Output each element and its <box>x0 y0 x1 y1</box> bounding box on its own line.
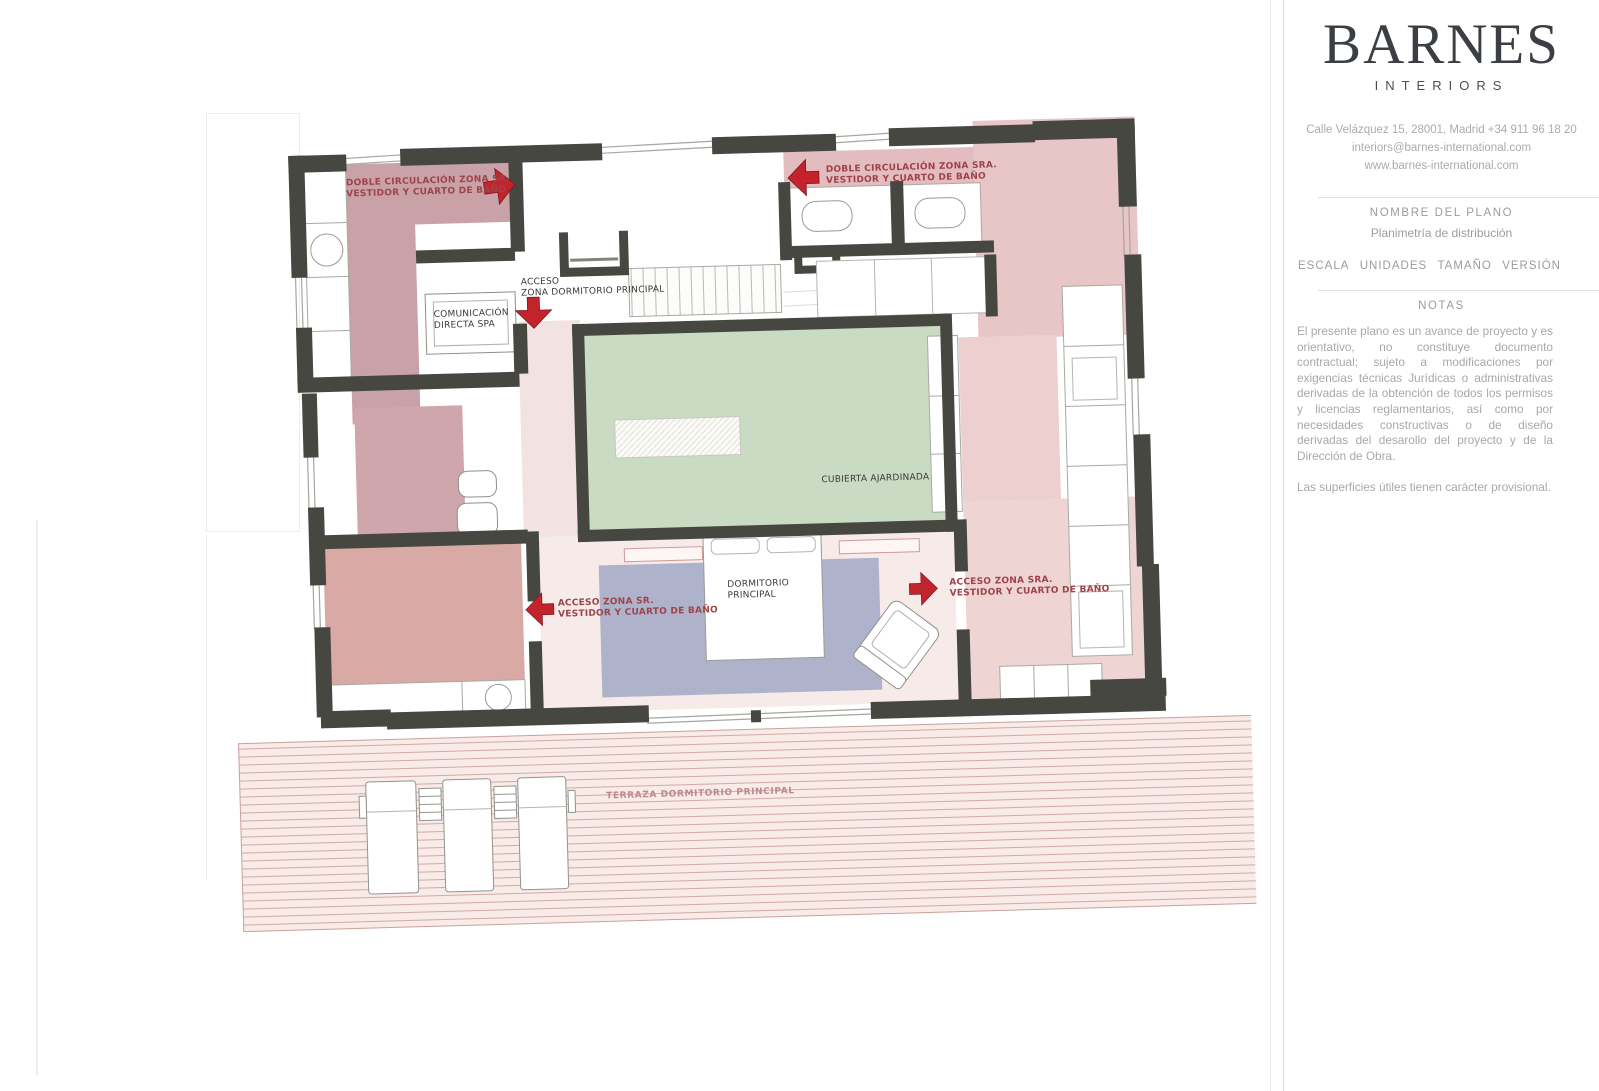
divider <box>1318 290 1599 291</box>
scan-artifact <box>36 520 38 1075</box>
meta-version: VERSIÓN <box>1502 260 1561 272</box>
plan-meta-row: ESCALA UNIDADES TAMAÑO VERSIÓN <box>1284 260 1599 272</box>
meta-escala: ESCALA <box>1298 260 1349 272</box>
label-line: DORMITORIO <box>727 578 789 590</box>
label-doble-circulacion-sr: DOBLE CIRCULACIÓN ZONA SR. VESTIDOR Y CU… <box>346 175 487 201</box>
label-acceso-sra: ACCESO ZONA SRA. VESTIDOR Y CUARTO DE BA… <box>949 573 1110 599</box>
label-comunicacion-spa: COMUNICACIÓN DIRECTA SPA <box>434 308 510 332</box>
label-line: DIRECTA SPA <box>434 319 495 331</box>
label-acceso-dormitorio: ACCESO ZONA DORMITORIO PRINCIPAL <box>521 274 665 300</box>
brand-logo: BARNES <box>1284 14 1599 76</box>
label-acceso-sr: ACCESO ZONA SR. VESTIDOR Y CUARTO DE BAÑ… <box>558 594 719 620</box>
contact-block: Calle Velázquez 15, 28001, Madrid +34 91… <box>1284 121 1599 175</box>
contact-website: www.barnes-international.com <box>1284 157 1599 175</box>
meta-unidades: UNIDADES <box>1360 260 1427 272</box>
divider <box>1318 197 1599 198</box>
terrace-deck <box>239 715 1257 931</box>
label-dormitorio-principal: DORMITORIO PRINCIPAL <box>727 578 789 602</box>
page-edge-line <box>1270 0 1271 1091</box>
floor-plan: DOBLE CIRCULACIÓN ZONA SR. VESTIDOR Y CU… <box>193 66 1256 940</box>
label-line: COMUNICACIÓN <box>434 308 509 320</box>
notes-paragraph-2: Las superficies útiles tienen carácter p… <box>1284 480 1599 496</box>
meta-tamano: TAMAÑO <box>1438 260 1492 272</box>
contact-email: interiors@barnes-international.com <box>1284 139 1599 157</box>
plan-section-title: NOMBRE DEL PLANO <box>1284 207 1599 219</box>
label-line: PRINCIPAL <box>727 590 776 601</box>
notes-paragraph: El presente plano es un avance de proyec… <box>1284 324 1599 464</box>
contact-address: Calle Velázquez 15, 28001, Madrid +34 91… <box>1284 121 1599 139</box>
info-sidebar: BARNES INTERIORS Calle Velázquez 15, 280… <box>1283 0 1599 1091</box>
brand-sublogo: INTERIORS <box>1284 78 1599 93</box>
label-line: CUBIERTA AJARDINADA <box>821 472 929 485</box>
notes-title: NOTAS <box>1284 300 1599 312</box>
label-line: ACCESO <box>521 277 560 288</box>
page: DOBLE CIRCULACIÓN ZONA SR. VESTIDOR Y CU… <box>0 0 1599 1091</box>
plan-name: Planimetría de distribución <box>1284 226 1599 240</box>
